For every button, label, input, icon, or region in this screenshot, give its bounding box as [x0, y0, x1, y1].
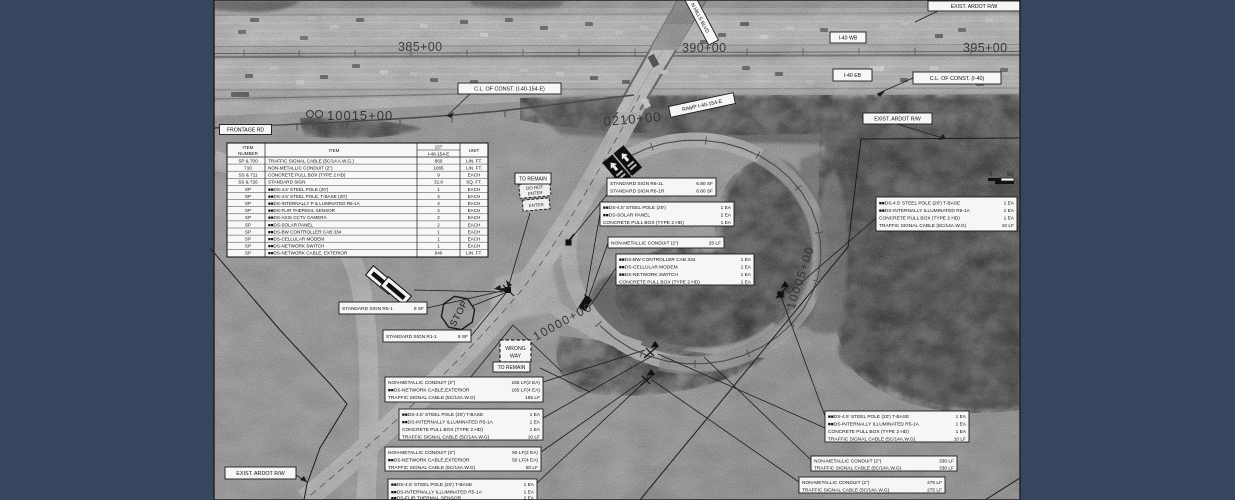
- svg-text:■■DS-BW CONTROLLER CAB 334: ■■DS-BW CONTROLLER CAB 334: [619, 257, 696, 263]
- svg-text:1 EA: 1 EA: [956, 429, 967, 435]
- svg-text:SP: SP: [245, 215, 251, 220]
- svg-text:710: 710: [244, 166, 252, 171]
- svg-text:SP & 700: SP & 700: [238, 158, 258, 163]
- svg-text:SS & 711: SS & 711: [238, 173, 258, 178]
- svg-text:TRAFFIC SIGNAL CABLE (5C/14A.W: TRAFFIC SIGNAL CABLE (5C/14A.W.G): [828, 437, 916, 443]
- svg-text:■■DS-CELLULAR MODEM: ■■DS-CELLULAR MODEM: [268, 237, 324, 242]
- svg-text:■■DS-4.5' STEEL POLE (20') T-B: ■■DS-4.5' STEEL POLE (20') T-BASE: [391, 482, 472, 488]
- svg-text:6.80 SF: 6.80 SF: [696, 181, 713, 187]
- svg-text:UNIT: UNIT: [469, 148, 480, 153]
- svg-text:■■DS-SOLAR PANEL: ■■DS-SOLAR PANEL: [603, 213, 650, 219]
- svg-text:CONCRETE PULL BOX (TYPE 2 HD): CONCRETE PULL BOX (TYPE 2 HD): [268, 173, 346, 178]
- svg-text:SP: SP: [245, 222, 251, 227]
- svg-text:STANDARD SIGN R1-1: STANDARD SIGN R1-1: [386, 334, 437, 340]
- svg-text:SP: SP: [245, 201, 251, 206]
- svg-text:1 EA: 1 EA: [530, 420, 541, 426]
- svg-text:■■DS-4.5' STEEL POLE (20') T-B: ■■DS-4.5' STEEL POLE (20') T-BASE: [828, 414, 909, 420]
- svg-text:1 EA: 1 EA: [956, 414, 967, 420]
- svg-text:50 LF(2 EA): 50 LF(2 EA): [512, 450, 538, 456]
- svg-text:I-40-154-E: I-40-154-E: [428, 152, 450, 157]
- svg-text:EXIST. ARDOT R/W: EXIST. ARDOT R/W: [874, 117, 921, 123]
- svg-text:C.L. OF CONST. (I-40-154-E): C.L. OF CONST. (I-40-154-E): [474, 87, 545, 93]
- svg-text:WRONG: WRONG: [505, 346, 525, 352]
- svg-text:NON-METALLIC CONDUIT (2"): NON-METALLIC CONDUIT (2"): [388, 450, 456, 456]
- svg-text:31.8: 31.8: [434, 180, 443, 185]
- svg-text:NUMBER: NUMBER: [238, 151, 259, 156]
- svg-text:1 EA: 1 EA: [530, 427, 541, 433]
- svg-text:165 LF(4 EA): 165 LF(4 EA): [511, 388, 540, 394]
- svg-text:■■DS-BW CONTROLLER CAB 334: ■■DS-BW CONTROLLER CAB 334: [268, 229, 342, 234]
- svg-text:1 EA: 1 EA: [1004, 208, 1015, 214]
- svg-text:EACH: EACH: [468, 222, 481, 227]
- svg-text:940: 940: [435, 251, 443, 256]
- svg-text:EACH: EACH: [468, 187, 481, 192]
- svg-text:NON-METALLIC CONDUIT (2"): NON-METALLIC CONDUIT (2"): [814, 459, 882, 465]
- svg-text:4: 4: [437, 201, 440, 206]
- svg-text:■■DS-INTERNALLY ILLUMINATED R5: ■■DS-INTERNALLY ILLUMINATED R5-1A: [391, 490, 483, 496]
- svg-text:SP: SP: [245, 244, 251, 249]
- svg-text:SS & 726: SS & 726: [238, 180, 258, 185]
- svg-text:ITEM: ITEM: [329, 148, 340, 153]
- svg-text:EXIST. ARDOT R/W: EXIST. ARDOT R/W: [236, 471, 285, 477]
- svg-text:TRAFFIC SIGNAL CABLE (5C/14A.W: TRAFFIC SIGNAL CABLE (5C/14A.W.G): [879, 223, 967, 229]
- svg-text:EACH: EACH: [468, 194, 481, 199]
- svg-text:■■DS-INTERNALLY ILLUMINATED R5: ■■DS-INTERNALLY ILLUMINATED R5-1A: [879, 208, 971, 214]
- svg-text:■■DS-AXIS CCTV CAMERA: ■■DS-AXIS CCTV CAMERA: [268, 215, 328, 220]
- svg-text:LIN. FT.: LIN. FT.: [466, 158, 482, 163]
- svg-text:50 LF(4 EA): 50 LF(4 EA): [512, 458, 538, 464]
- svg-text:TRAFFIC SIGNAL CABLE (5C/14A.W: TRAFFIC SIGNAL CABLE (5C/14A.W.G): [402, 435, 490, 441]
- svg-text:■■DS-4.5' STEEL POLE (20'): ■■DS-4.5' STEEL POLE (20'): [268, 187, 329, 192]
- svg-text:■■DS-NETWORK SWITCH: ■■DS-NETWORK SWITCH: [268, 244, 324, 249]
- svg-text:I-40 EB: I-40 EB: [844, 73, 862, 79]
- svg-text:■■DS-NETWORK CABLE, EXTERIOR: ■■DS-NETWORK CABLE, EXTERIOR: [268, 251, 348, 256]
- svg-text:1 EA: 1 EA: [741, 257, 752, 263]
- svg-text:LIN. FT.: LIN. FT.: [466, 166, 482, 171]
- svg-text:TRAFFIC SIGNAL CABLE (5C/14 A.: TRAFFIC SIGNAL CABLE (5C/14 A.W.G.): [268, 158, 354, 163]
- svg-text:■■DS-4.5' STEEL POLE (20'): ■■DS-4.5' STEEL POLE (20'): [603, 205, 666, 211]
- svg-text:157: 157: [435, 145, 443, 150]
- svg-text:10 LF: 10 LF: [1002, 223, 1014, 229]
- svg-text:330 LF: 330 LF: [939, 459, 954, 465]
- svg-text:NON-METALLIC CONDUIT (2"): NON-METALLIC CONDUIT (2"): [388, 380, 456, 386]
- svg-text:SP: SP: [245, 208, 251, 213]
- svg-text:CONCRETE PULL BOX (TYPE 2 HD): CONCRETE PULL BOX (TYPE 2 HD): [619, 280, 700, 286]
- svg-text:EACH: EACH: [468, 173, 481, 178]
- svg-text:EACH: EACH: [468, 208, 481, 213]
- svg-text:■■DS-NETWORK SWITCH: ■■DS-NETWORK SWITCH: [619, 272, 678, 278]
- svg-text:1: 1: [437, 237, 440, 242]
- svg-text:CONCRETE PULL BOX (TYPE 2 HD): CONCRETE PULL BOX (TYPE 2 HD): [402, 427, 483, 433]
- svg-text:■■DS-4.5' STEEL POLE (20') T-B: ■■DS-4.5' STEEL POLE (20') T-BASE: [879, 201, 960, 207]
- svg-text:STANDARD SIGN: STANDARD SIGN: [268, 180, 305, 185]
- svg-text:ITEM: ITEM: [243, 145, 254, 150]
- svg-text:2 EA: 2 EA: [721, 213, 732, 219]
- svg-text:10 LF: 10 LF: [528, 435, 540, 441]
- svg-text:■■DS-INTERNALLY ILLUMINATED R5: ■■DS-INTERNALLY ILLUMINATED R5-1A: [828, 422, 920, 428]
- svg-text:EACH: EACH: [468, 229, 481, 234]
- svg-text:■■DS-NETWORK CABLE,EXTERIOR: ■■DS-NETWORK CABLE,EXTERIOR: [388, 388, 470, 394]
- svg-text:TO REMAIN: TO REMAIN: [519, 177, 547, 183]
- svg-text:1 EA: 1 EA: [1004, 216, 1015, 222]
- svg-text:TRAFFIC SIGNAL CABLE (5C/14A.W: TRAFFIC SIGNAL CABLE (5C/14A.W.G): [388, 465, 476, 471]
- svg-text:275 LF: 275 LF: [927, 480, 942, 486]
- svg-text:■■DS-4.5' STEEL POLE (20') T-B: ■■DS-4.5' STEEL POLE (20') T-BASE: [402, 412, 483, 418]
- svg-text:2: 2: [437, 222, 440, 227]
- svg-text:SP: SP: [245, 194, 251, 199]
- svg-text:1 EA: 1 EA: [1004, 201, 1015, 207]
- svg-text:TO REMAIN: TO REMAIN: [498, 365, 526, 371]
- svg-text:NON-METALLIC CONDUIT (2"): NON-METALLIC CONDUIT (2"): [268, 166, 333, 171]
- svg-text:I-40 WB: I-40 WB: [839, 36, 858, 42]
- svg-text:■■DS-CELLULAR MODEM: ■■DS-CELLULAR MODEM: [619, 265, 678, 271]
- svg-text:SQ. FT.: SQ. FT.: [466, 180, 482, 185]
- svg-text:275 LF: 275 LF: [927, 488, 942, 494]
- svg-text:CONCRETE PULL BOX (TYPE 2 HD): CONCRETE PULL BOX (TYPE 2 HD): [879, 216, 960, 222]
- svg-text:CONCRETE PULL BOX (TYPE 2 HD): CONCRETE PULL BOX (TYPE 2 HD): [828, 429, 909, 435]
- svg-text:1 EA: 1 EA: [524, 490, 535, 496]
- svg-text:■■DS-NETWORK CABLE,EXTERIOR: ■■DS-NETWORK CABLE,EXTERIOR: [388, 458, 470, 464]
- svg-text:165 LF: 165 LF: [525, 395, 540, 401]
- svg-text:■■DS-FLIR THERMAL SENSOR: ■■DS-FLIR THERMAL SENSOR: [268, 208, 336, 213]
- svg-text:25 LF: 25 LF: [709, 241, 721, 247]
- svg-text:385+00: 385+00: [398, 40, 442, 54]
- svg-text:LIN. FT.: LIN. FT.: [466, 251, 482, 256]
- svg-text:EACH: EACH: [468, 237, 481, 242]
- svg-text:10015+00: 10015+00: [327, 108, 393, 123]
- svg-text:NON-METALLIC CONDUIT (2"): NON-METALLIC CONDUIT (2"): [611, 241, 679, 247]
- svg-text:TRAFFIC SIGNAL CABLE (5C/14A.W: TRAFFIC SIGNAL CABLE (5C/14A.W.G): [814, 466, 902, 472]
- svg-text:■■DS-INTERNALLY P & LUMINATED: ■■DS-INTERNALLY P & LUMINATED R5-1A: [268, 201, 361, 206]
- svg-text:EXIST. ARDOT R/W: EXIST. ARDOT R/W: [951, 4, 998, 10]
- svg-text:1 EA: 1 EA: [524, 482, 535, 488]
- svg-text:STANDARD SIGN R6-1R: STANDARD SIGN R6-1R: [610, 189, 665, 195]
- svg-text:SP: SP: [245, 187, 251, 192]
- svg-text:EACH: EACH: [468, 201, 481, 206]
- svg-text:WAY: WAY: [510, 354, 522, 360]
- svg-text:TRAFFIC SIGNAL CABLE (5C/14A.W: TRAFFIC SIGNAL CABLE (5C/14A.W.G): [802, 488, 890, 494]
- svg-text:1 EA: 1 EA: [741, 265, 752, 271]
- svg-text:1 EA: 1 EA: [530, 412, 541, 418]
- svg-text:C.L. OF CONST. (I-40): C.L. OF CONST. (I-40): [930, 76, 985, 82]
- svg-text:FRONTAGE RD: FRONTAGE RD: [227, 128, 265, 134]
- svg-text:TRAFFIC SIGNAL CABLE (5C/14A.W: TRAFFIC SIGNAL CABLE (5C/14A.W.G): [388, 395, 476, 401]
- svg-text:1: 1: [437, 187, 440, 192]
- svg-text:4: 4: [437, 194, 440, 199]
- svg-text:1 EA: 1 EA: [956, 422, 967, 428]
- svg-text:EACH: EACH: [468, 244, 481, 249]
- svg-text:9 SF: 9 SF: [414, 306, 424, 312]
- svg-text:1065: 1065: [433, 166, 444, 171]
- svg-text:SP: SP: [245, 251, 251, 256]
- svg-text:SP: SP: [245, 229, 251, 234]
- svg-text:1: 1: [437, 244, 440, 249]
- svg-text:EACH: EACH: [468, 215, 481, 220]
- svg-text:NON-METALLIC CONDUIT (2"): NON-METALLIC CONDUIT (2"): [802, 480, 870, 486]
- svg-text:1 EA: 1 EA: [721, 220, 732, 226]
- svg-text:■■DS-INTERNALLY ILLUMINATED R5: ■■DS-INTERNALLY ILLUMINATED R5-1A: [402, 420, 494, 426]
- svg-text:2: 2: [437, 215, 440, 220]
- svg-text:50 LF: 50 LF: [526, 465, 538, 471]
- svg-text:9 SF: 9 SF: [458, 334, 468, 340]
- svg-text:■■DS-SOLAR PANEL: ■■DS-SOLAR PANEL: [268, 222, 313, 227]
- svg-text:SP: SP: [245, 237, 251, 242]
- svg-text:2: 2: [437, 208, 440, 213]
- svg-text:860: 860: [435, 158, 443, 163]
- svg-text:CONCRETE PULL BOX (TYPE 2 HD): CONCRETE PULL BOX (TYPE 2 HD): [603, 220, 684, 226]
- svg-text:STANDARD SIGN R5-1: STANDARD SIGN R5-1: [342, 306, 393, 312]
- svg-text:1 EA: 1 EA: [741, 280, 752, 286]
- svg-text:330 LF: 330 LF: [939, 466, 954, 472]
- svg-text:■■DS-4.5' STEEL POLE, T-BASE (: ■■DS-4.5' STEEL POLE, T-BASE (20'): [268, 194, 348, 199]
- svg-text:9: 9: [437, 173, 440, 178]
- svg-text:STANDARD SIGN R6-1L: STANDARD SIGN R6-1L: [610, 181, 664, 187]
- svg-text:165 LF(2 EA): 165 LF(2 EA): [511, 380, 540, 386]
- svg-text:10 LF: 10 LF: [954, 437, 966, 443]
- svg-text:395+00: 395+00: [963, 41, 1007, 55]
- svg-text:1 EA: 1 EA: [741, 272, 752, 278]
- svg-text:390+00: 390+00: [682, 41, 726, 55]
- svg-text:1 EA: 1 EA: [721, 205, 732, 211]
- svg-text:1: 1: [437, 229, 440, 234]
- svg-text:6.80 SF: 6.80 SF: [696, 189, 713, 195]
- svg-text:50: 50: [1007, 172, 1014, 178]
